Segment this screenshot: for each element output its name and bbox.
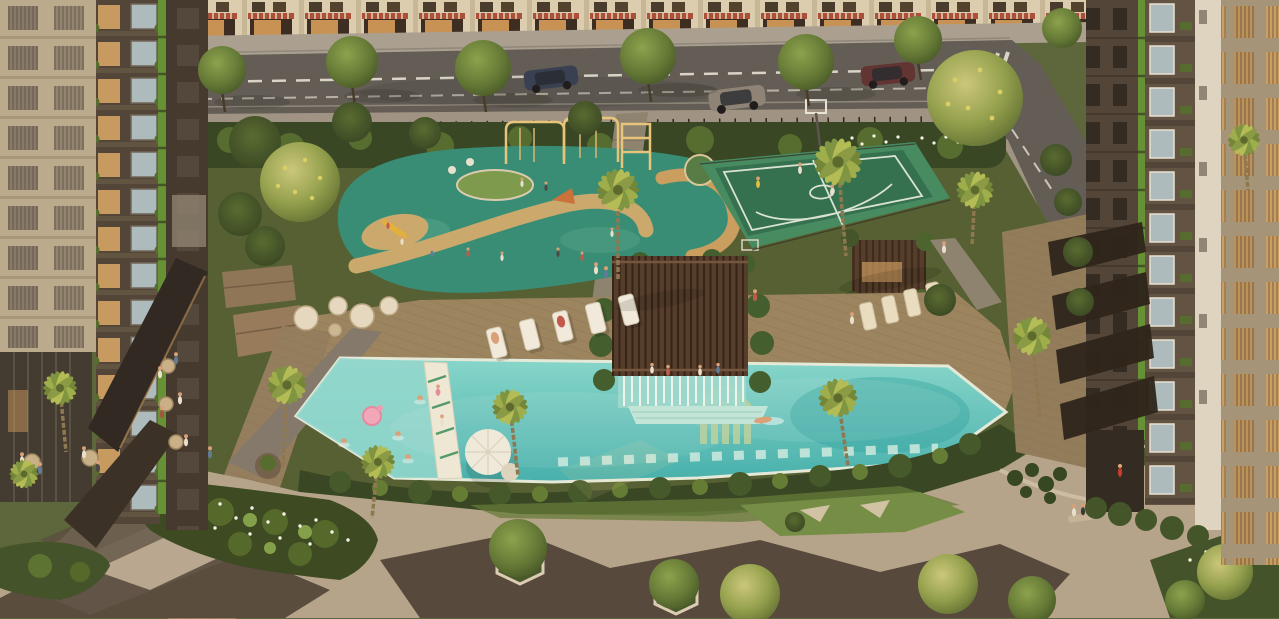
golden-light-overlay [0,0,1279,619]
aerial-render [0,0,1279,619]
render-canvas [0,0,1279,619]
